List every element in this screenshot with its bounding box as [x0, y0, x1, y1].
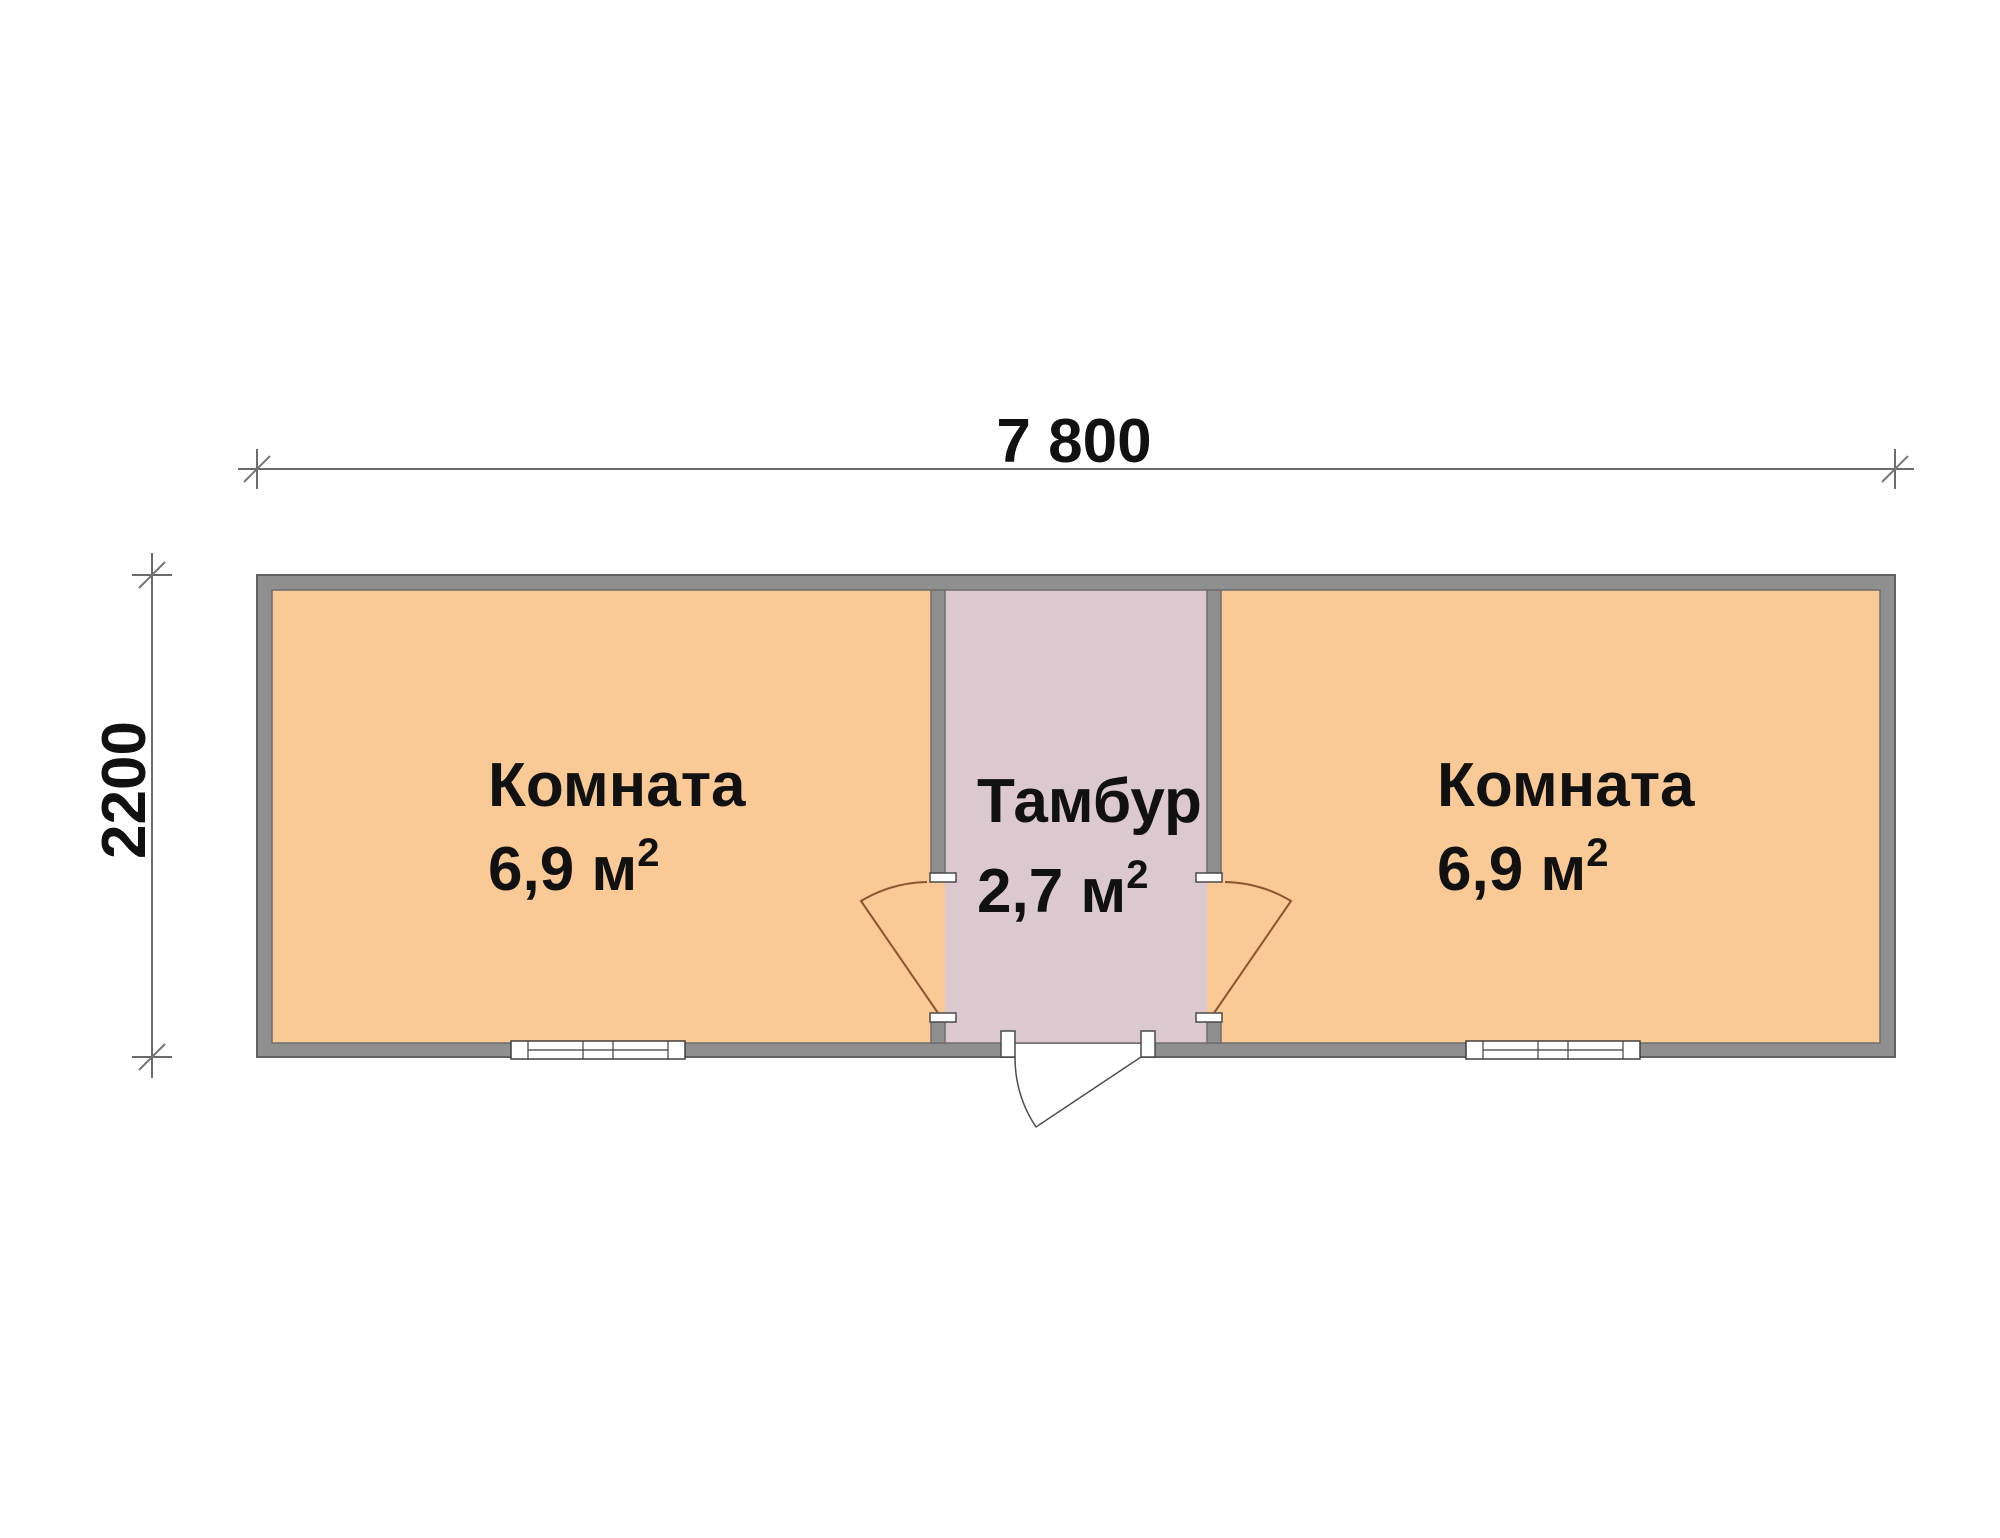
room-left-name: Комната	[488, 751, 746, 820]
entrance-door-jamb-right	[1141, 1031, 1155, 1057]
dimension-width-label: 7 800	[996, 407, 1151, 476]
partition-right-upper	[1207, 590, 1221, 873]
floor-plan-page: 7 800 2200	[0, 0, 2000, 1538]
partition-left-stub	[931, 1022, 945, 1043]
entrance-door-swing	[1015, 1057, 1141, 1127]
dimension-height: 2200	[90, 553, 172, 1078]
floor-plan-drawing: 7 800 2200	[0, 0, 2000, 1538]
door-right-jamb-top	[1196, 873, 1222, 882]
window-left	[511, 1041, 685, 1059]
room-left-area: 6,9 м2	[488, 831, 660, 904]
vestibule-name: Тамбур	[977, 767, 1202, 836]
door-left-jamb-top	[930, 873, 956, 882]
door-right-jamb-bottom	[1196, 1013, 1222, 1022]
room-right-area: 6,9 м2	[1437, 831, 1609, 904]
room-right-name: Комната	[1437, 751, 1695, 820]
dimension-width: 7 800	[238, 407, 1914, 489]
entrance-door-opening	[1015, 1044, 1141, 1060]
entrance-door-jamb-left	[1001, 1031, 1015, 1057]
partition-left-upper	[931, 590, 945, 873]
partition-right-stub	[1207, 1022, 1221, 1043]
dimension-height-label: 2200	[90, 721, 159, 859]
window-right	[1466, 1041, 1640, 1059]
vestibule-area: 2,7 м2	[977, 853, 1149, 926]
door-left-jamb-bottom	[930, 1013, 956, 1022]
